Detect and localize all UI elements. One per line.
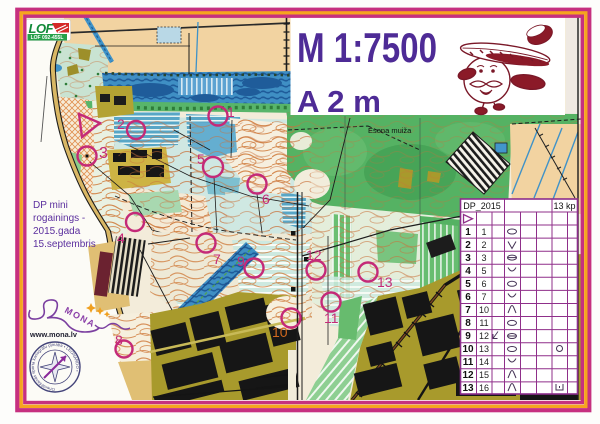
svg-text:13: 13 [462, 383, 474, 394]
svg-text:5: 5 [197, 151, 205, 167]
svg-text:13: 13 [377, 274, 393, 290]
svg-text:M 1:7500: M 1:7500 [297, 24, 437, 71]
svg-text:10: 10 [272, 324, 288, 340]
svg-text:11: 11 [324, 310, 339, 326]
svg-text:1: 1 [465, 227, 471, 238]
svg-text:5: 5 [481, 266, 486, 276]
svg-text:4: 4 [465, 266, 471, 277]
svg-text:2: 2 [117, 116, 125, 132]
svg-text:7: 7 [481, 292, 486, 302]
svg-text:3: 3 [481, 253, 486, 263]
svg-text:16: 16 [479, 383, 489, 393]
svg-text:LOF: LOF [29, 21, 55, 36]
svg-text:3: 3 [99, 145, 108, 162]
svg-text:10: 10 [462, 344, 474, 355]
svg-text:15.septembris: 15.septembris [33, 239, 96, 250]
svg-text:LOF 092-455L: LOF 092-455L [31, 35, 64, 41]
svg-text:6: 6 [465, 292, 471, 303]
svg-text:8: 8 [115, 332, 123, 348]
svg-text:9: 9 [465, 331, 471, 342]
svg-text:10: 10 [479, 305, 489, 315]
svg-text:A 2 m: A 2 m [297, 84, 381, 119]
svg-text:15: 15 [479, 370, 489, 380]
svg-text:2: 2 [481, 240, 486, 250]
svg-text:4: 4 [117, 230, 125, 246]
svg-text:www.mona.lv: www.mona.lv [29, 330, 78, 339]
svg-text:DP_2015: DP_2015 [463, 201, 501, 211]
svg-text:11: 11 [479, 318, 488, 328]
svg-text:12: 12 [462, 370, 474, 381]
svg-text:DP mini: DP mini [33, 200, 68, 211]
svg-text:2: 2 [465, 240, 471, 251]
svg-text:1: 1 [227, 104, 235, 120]
svg-text:7: 7 [213, 251, 221, 267]
svg-text:Esena muiža: Esena muiža [368, 126, 412, 135]
svg-text:8: 8 [465, 318, 471, 329]
svg-text:1: 1 [481, 227, 486, 237]
svg-text:7: 7 [465, 305, 471, 316]
svg-text:14: 14 [479, 357, 489, 367]
svg-text:12: 12 [306, 247, 322, 263]
svg-text:13 kp: 13 kp [553, 201, 575, 211]
svg-text:6: 6 [262, 191, 270, 207]
svg-text:6: 6 [481, 279, 486, 289]
svg-text:2015.gada: 2015.gada [33, 226, 81, 237]
svg-text:13: 13 [479, 344, 489, 354]
svg-text:3: 3 [465, 253, 471, 264]
svg-text:rogainings -: rogainings - [33, 213, 85, 224]
svg-text:12: 12 [479, 331, 489, 341]
svg-text:9: 9 [237, 253, 245, 269]
svg-text:5: 5 [465, 279, 471, 290]
svg-text:11: 11 [463, 357, 474, 368]
